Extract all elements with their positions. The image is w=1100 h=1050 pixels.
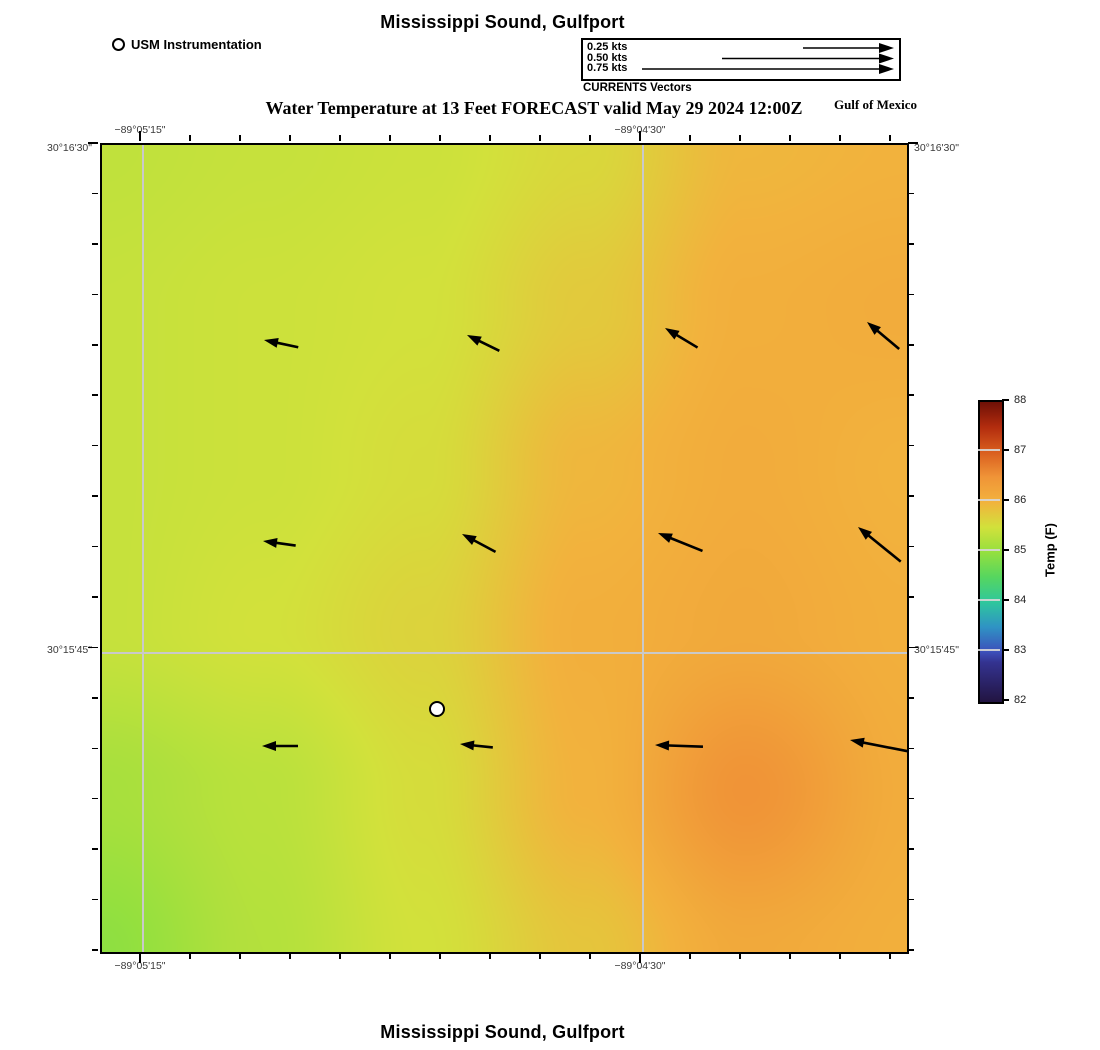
colorbar-tick-label: 87 [1014, 444, 1026, 456]
y-axis-label-right-top: 30°16'30" [914, 142, 994, 154]
axis-tick [239, 135, 241, 141]
y-axis-label-left-bottom: 30°15'45" [18, 644, 92, 656]
gridline [642, 145, 644, 952]
colorbar-tick-line [978, 599, 1000, 601]
axis-tick [789, 135, 791, 141]
footer-title: Mississippi Sound, Gulfport [100, 1022, 905, 1043]
axis-tick [889, 135, 891, 141]
colorbar-tick [1002, 599, 1009, 601]
axis-tick [908, 243, 914, 245]
axis-tick [92, 899, 98, 901]
axis-tick [92, 193, 98, 195]
axis-tick [92, 294, 98, 296]
axis-tick [389, 135, 391, 141]
colorbar-tick [1002, 649, 1009, 651]
axis-tick [908, 748, 914, 750]
axis-tick [339, 953, 341, 959]
colorbar-tick-label: 86 [1014, 494, 1026, 506]
axis-tick [639, 131, 641, 141]
axis-tick [88, 647, 98, 649]
colorbar-tick-line [978, 499, 1000, 501]
colorbar-tick [1002, 399, 1009, 401]
axis-tick [92, 394, 98, 396]
colorbar-tick [1002, 549, 1009, 551]
colorbar-tick-line [978, 649, 1000, 651]
axis-tick [92, 445, 98, 447]
usm-legend-label: USM Instrumentation [131, 37, 262, 52]
gulf-of-mexico-label: Gulf of Mexico [834, 97, 917, 113]
colorbar-tick [1002, 699, 1009, 701]
axis-tick [908, 294, 914, 296]
axis-tick [92, 344, 98, 346]
axis-tick [539, 135, 541, 141]
colorbar [978, 400, 1004, 704]
colorbar-tick-line [978, 549, 1000, 551]
forecast-subtitle: Water Temperature at 13 Feet FORECAST va… [134, 98, 934, 119]
axis-tick [908, 647, 918, 649]
axis-tick [92, 949, 98, 951]
axis-tick [739, 135, 741, 141]
axis-tick [908, 899, 914, 901]
axis-tick [92, 596, 98, 598]
axis-tick [189, 135, 191, 141]
gridline [102, 652, 907, 654]
colorbar-tick-line [978, 449, 1000, 451]
axis-tick [389, 953, 391, 959]
axis-tick [689, 953, 691, 959]
colorbar-tick [1002, 499, 1009, 501]
temperature-heatmap-canvas [102, 145, 907, 952]
page-title: Mississippi Sound, Gulfport [100, 12, 905, 33]
axis-tick [88, 142, 98, 144]
axis-tick [92, 848, 98, 850]
currents-legend-box [581, 38, 901, 81]
axis-tick [189, 953, 191, 959]
currents-legend-caption: CURRENTS Vectors [583, 82, 692, 94]
axis-tick [739, 953, 741, 959]
axis-tick [92, 697, 98, 699]
axis-tick [908, 949, 914, 951]
currents-legend-row-label: 0.75 kts [587, 63, 627, 74]
axis-tick [589, 135, 591, 141]
axis-tick [139, 953, 141, 963]
axis-tick [689, 135, 691, 141]
axis-tick [539, 953, 541, 959]
gridline [142, 145, 144, 952]
axis-tick [889, 953, 891, 959]
colorbar-tick-label: 88 [1014, 394, 1026, 406]
colorbar-tick-label: 85 [1014, 544, 1026, 556]
station-marker [429, 701, 445, 717]
axis-tick [908, 394, 914, 396]
axis-tick [289, 953, 291, 959]
axis-tick [589, 953, 591, 959]
axis-tick [908, 546, 914, 548]
axis-tick [439, 953, 441, 959]
axis-tick [92, 748, 98, 750]
colorbar-tick-label: 83 [1014, 644, 1026, 656]
axis-tick [439, 135, 441, 141]
station-circle-icon [112, 38, 125, 51]
y-axis-label-left-top: 30°16'30" [18, 142, 92, 154]
colorbar-tick-label: 82 [1014, 694, 1026, 706]
axis-tick [239, 953, 241, 959]
axis-tick [908, 142, 918, 144]
axis-tick [92, 546, 98, 548]
axis-tick [489, 135, 491, 141]
forecast-figure: Mississippi Sound, Gulfport USM Instrume… [0, 0, 1100, 1050]
axis-tick [839, 135, 841, 141]
axis-tick [839, 953, 841, 959]
axis-tick [92, 798, 98, 800]
axis-tick [908, 344, 914, 346]
axis-tick [908, 495, 914, 497]
axis-tick [92, 495, 98, 497]
axis-tick [639, 953, 641, 963]
axis-tick [908, 193, 914, 195]
usm-instrumentation-legend: USM Instrumentation [112, 37, 262, 52]
axis-tick [908, 697, 914, 699]
temperature-map [100, 143, 909, 954]
axis-tick [908, 596, 914, 598]
axis-tick [789, 953, 791, 959]
axis-tick [908, 848, 914, 850]
colorbar-tick [1002, 449, 1009, 451]
axis-tick [489, 953, 491, 959]
axis-tick [339, 135, 341, 141]
axis-tick [92, 243, 98, 245]
colorbar-axis-label: Temp (F) [1043, 523, 1058, 577]
axis-tick [139, 131, 141, 141]
axis-tick [908, 445, 914, 447]
axis-tick [908, 798, 914, 800]
colorbar-tick-label: 84 [1014, 594, 1026, 606]
axis-tick [289, 135, 291, 141]
